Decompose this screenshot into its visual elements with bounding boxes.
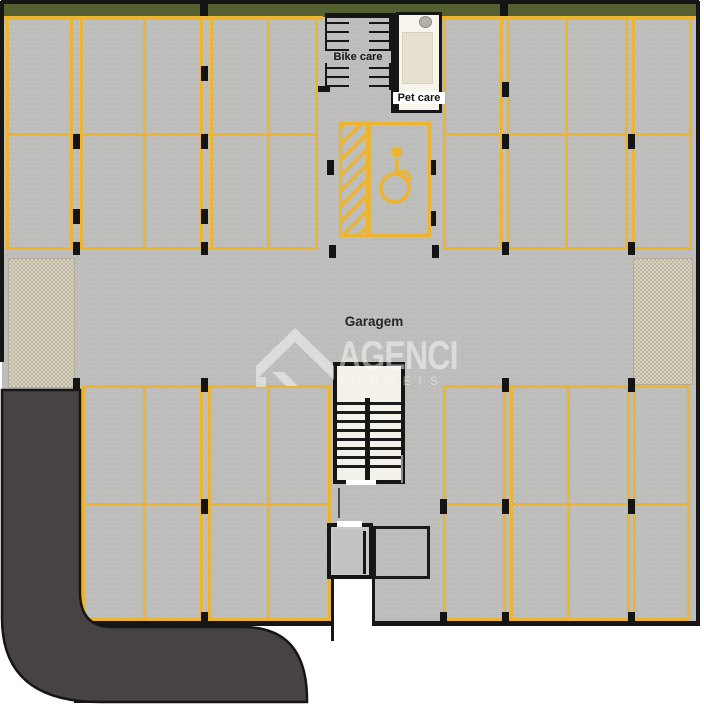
stair-step-line xyxy=(370,447,401,450)
bike-rack-tick xyxy=(369,85,391,87)
column-marker xyxy=(628,134,635,149)
bike-area-end-post xyxy=(318,86,330,92)
bike-rack-tick xyxy=(369,67,391,69)
bike-rack-tick xyxy=(327,31,349,33)
stair-step-line xyxy=(370,402,401,405)
staircase-door-leaf xyxy=(401,455,403,483)
parking-stall-line xyxy=(143,17,146,250)
stair-step-line xyxy=(337,429,365,432)
column-marker xyxy=(200,3,208,16)
garage-label: Garagem xyxy=(336,314,412,329)
bike-rack-tick xyxy=(327,67,349,69)
parking-stall-line xyxy=(267,17,270,250)
stair-step-line xyxy=(337,411,365,414)
parking-stall-line xyxy=(80,17,83,250)
column-marker xyxy=(502,612,509,624)
wall-stub xyxy=(338,488,340,518)
stair-step-line xyxy=(337,438,365,441)
driveway-ramp xyxy=(0,380,320,707)
stair-step-line xyxy=(337,420,365,423)
bike-rack-tick xyxy=(369,76,391,78)
sink-icon xyxy=(419,16,432,28)
column-marker xyxy=(628,378,635,392)
stair-step-line xyxy=(370,411,401,414)
service-room xyxy=(373,526,430,579)
parking-stall-line xyxy=(567,385,570,621)
elevator-door-line xyxy=(363,531,366,574)
column-marker xyxy=(201,134,208,149)
ramp-corridor-left-wall xyxy=(331,579,334,641)
stair-step-line xyxy=(370,456,401,459)
elevator-door-gap xyxy=(337,521,362,527)
wheelchair-icon xyxy=(374,145,420,211)
column-marker xyxy=(500,3,508,16)
stair-step-line xyxy=(370,420,401,423)
stair-step-line xyxy=(370,438,401,441)
column-marker xyxy=(73,209,80,224)
bike-rack-tick xyxy=(327,85,349,87)
staircase-door-gap xyxy=(346,480,376,485)
column-marker xyxy=(440,612,447,624)
column-marker xyxy=(502,378,509,392)
elevator-car xyxy=(333,530,364,574)
column-marker xyxy=(628,242,635,255)
parking-stall-line xyxy=(210,17,213,250)
column-marker xyxy=(73,134,80,149)
stair-step-line xyxy=(337,456,365,459)
ramp-corridor xyxy=(334,579,372,644)
column-marker xyxy=(432,245,439,258)
hatched-zone xyxy=(339,122,369,237)
column-marker xyxy=(73,242,80,255)
bike-rack-tick xyxy=(369,31,391,33)
column-marker xyxy=(440,499,447,514)
column-marker xyxy=(329,245,336,258)
pet-care-label: Pet care xyxy=(393,92,445,104)
stair-step-line xyxy=(370,465,401,468)
stair-step-line xyxy=(337,465,365,468)
stair-step-line xyxy=(370,429,401,432)
bike-care-label: Bike care xyxy=(324,51,392,63)
stair-step-line xyxy=(337,447,365,450)
column-marker xyxy=(201,242,208,255)
column-marker xyxy=(327,160,334,175)
column-marker xyxy=(502,134,509,149)
stair-step-line xyxy=(337,402,365,405)
parking-stall-line xyxy=(565,17,568,250)
bike-rack-tick xyxy=(369,22,391,24)
column-marker xyxy=(502,82,509,97)
bike-rack-tick xyxy=(369,40,391,42)
column-marker xyxy=(502,242,509,255)
parking-row-line xyxy=(6,133,318,136)
pet-care-counter xyxy=(402,32,433,84)
bike-rack-tick xyxy=(327,40,349,42)
parking-stall-line xyxy=(510,385,513,621)
ramp-corridor-right-wall xyxy=(372,579,375,624)
garage-floor-plan: Bike care Pet care Garagem xyxy=(0,0,704,707)
bike-rack-tick xyxy=(327,76,349,78)
bike-rack-tick xyxy=(327,22,349,24)
column-marker xyxy=(502,499,509,514)
column-marker xyxy=(201,209,208,224)
column-marker xyxy=(201,66,208,81)
column-marker xyxy=(628,612,635,624)
column-marker xyxy=(628,499,635,514)
